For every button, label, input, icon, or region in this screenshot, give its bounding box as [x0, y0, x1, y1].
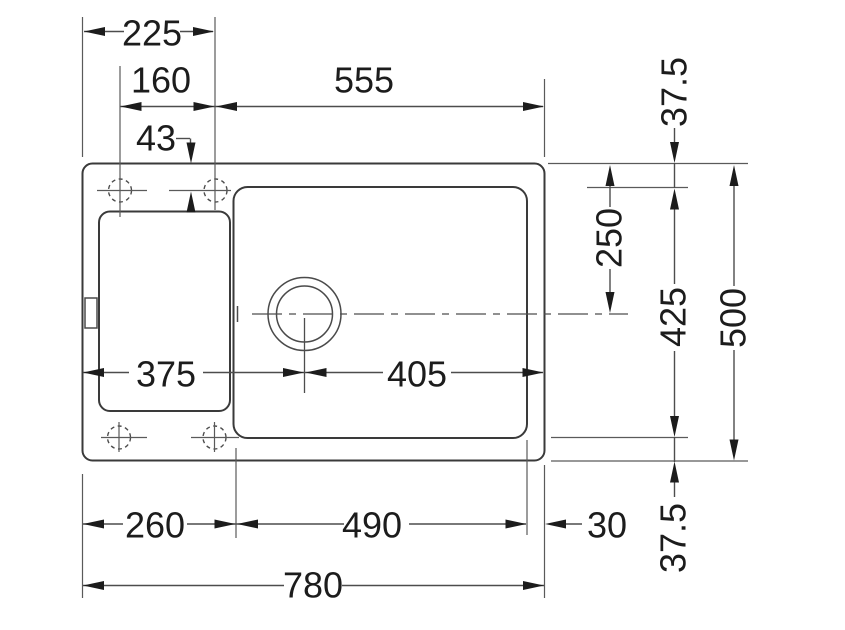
- dim-label-250: 250: [589, 208, 630, 268]
- dim-label-260: 260: [125, 505, 185, 546]
- dim-label-160: 160: [131, 60, 191, 101]
- sink-outer-rim: [83, 164, 545, 461]
- dim-label-375: 375: [136, 354, 196, 395]
- faucet-hole-crosshairs: [97, 191, 239, 453]
- dim-label-37-5-bottom: 37.5: [653, 503, 694, 573]
- sink-dimension-diagram: 225 160 555 43 375 405 260 490 30 780 37…: [0, 0, 845, 630]
- dimension-labels: 225 160 555 43 375 405 260 490 30 780 37…: [122, 13, 754, 606]
- dim-label-780: 780: [283, 565, 343, 606]
- dimension-lines: [83, 32, 734, 586]
- dim-label-43: 43: [136, 118, 176, 159]
- dim-label-37-5-top: 37.5: [654, 57, 695, 127]
- main-bowl: [234, 187, 528, 438]
- dim-label-225: 225: [122, 13, 182, 54]
- technical-drawing-canvas: 225 160 555 43 375 405 260 490 30 780 37…: [0, 0, 845, 630]
- dim-label-405: 405: [387, 354, 447, 395]
- dim-label-490: 490: [342, 505, 402, 546]
- dim-label-30: 30: [587, 505, 627, 546]
- overflow-notch: [85, 298, 97, 328]
- sink-outline: [83, 164, 545, 461]
- dim-label-500: 500: [713, 288, 754, 348]
- dim-label-425: 425: [653, 287, 694, 347]
- dim-label-555: 555: [334, 60, 394, 101]
